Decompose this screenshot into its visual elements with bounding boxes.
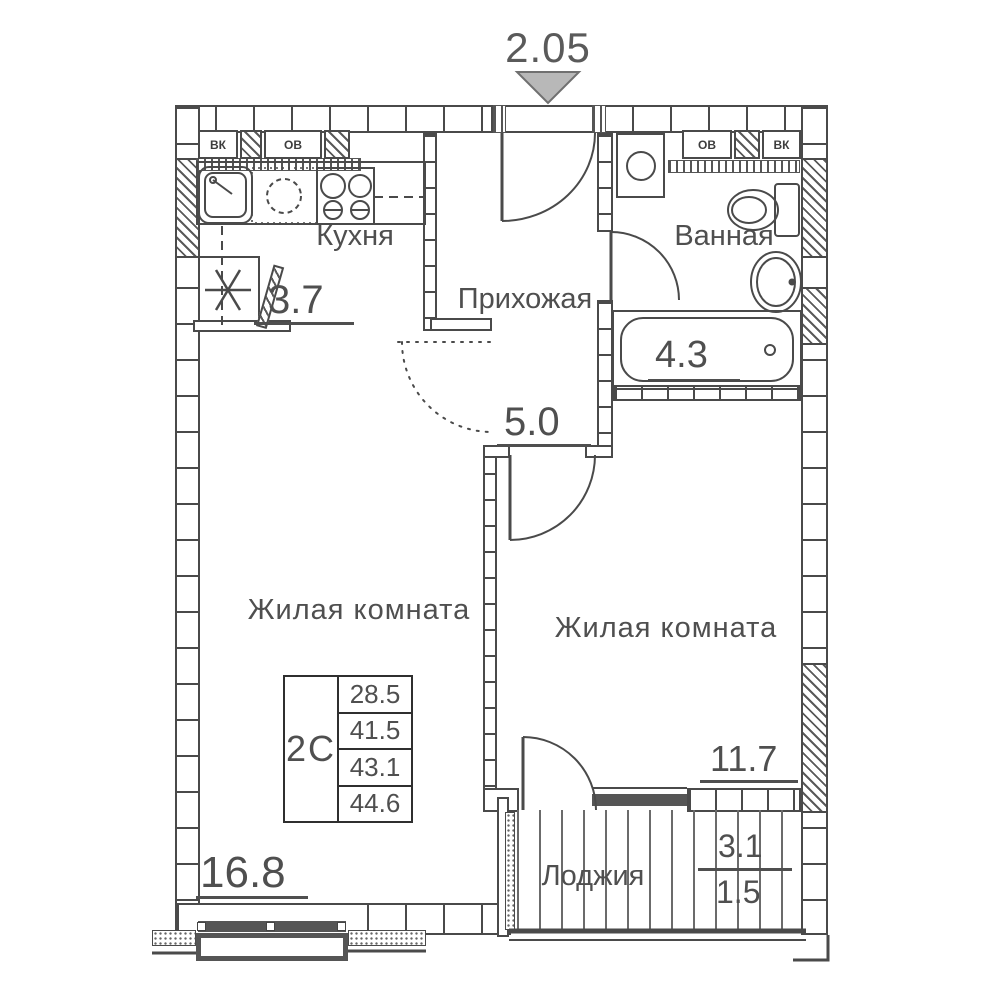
balcony-door-swing-icon: [523, 737, 596, 810]
living2-area-underline: [700, 780, 798, 783]
entrance-door-swing-icon: [502, 133, 595, 221]
washbasin-icon: [751, 252, 801, 312]
loggia-glazing-line: [509, 931, 806, 940]
wall-kitchen-hall-stub: [430, 318, 492, 331]
living2-area: 11.7: [710, 738, 777, 780]
living1-area-underline: [196, 896, 308, 899]
living1-label: Жилая комната: [230, 594, 488, 627]
wall-bath-bottom: [613, 385, 801, 401]
apartment-info-table: 2С 28.5 41.5 43.1 44.6: [283, 675, 413, 823]
area-value-row: 28.5: [339, 677, 411, 714]
living2-label: Жилая комната: [536, 612, 796, 645]
balcony-slab: [196, 933, 348, 961]
bathroom-label: Ванная: [660, 220, 788, 253]
insulation-loggia-left: [505, 812, 515, 930]
area-value-row: 43.1: [339, 750, 411, 787]
open-doorway-dotted-icon: [398, 342, 490, 432]
wall-end-step: [793, 935, 828, 960]
window-loggia-frame: [592, 794, 687, 806]
entrance-opening: [506, 105, 592, 133]
wall-top-left: [175, 105, 493, 133]
hallway-label: Прихожая: [446, 283, 604, 316]
shaft-right-ov: ОВ: [682, 130, 732, 159]
loggia-area-divider: [698, 868, 792, 871]
entrance-arrow-icon: [517, 72, 579, 103]
shaft-right-vk: ВК: [762, 130, 801, 159]
shaft-left-vk: ВК: [198, 130, 238, 159]
shaft-left-duct: [240, 130, 262, 159]
insulation-bottom-mid: [348, 930, 426, 946]
shaft-left-vk-label: ВК: [210, 138, 226, 152]
wall-hall-bath-upper: [597, 133, 613, 232]
shaft-right-ov-label: ОВ: [698, 138, 716, 152]
wall-right-hatch-3: [801, 663, 828, 813]
hallway-area-underline: [497, 444, 591, 447]
loggia-area-full: 3.1: [718, 828, 762, 865]
area-value-row: 44.6: [339, 787, 411, 822]
wall-right-hatch-2: [801, 287, 828, 345]
wall-loggia-right-seg: [687, 788, 801, 812]
kitchen-counter: [196, 161, 426, 225]
entrance-jamb-right: [592, 105, 606, 133]
entrance-jamb-left: [493, 105, 506, 133]
shaft-right-duct: [734, 130, 760, 159]
vent-shaft-box: [198, 256, 260, 322]
loggia-label: Лоджия: [528, 860, 658, 893]
window-loggia-lintel: [592, 787, 687, 789]
loggia-area-reduced: 1.5: [716, 874, 760, 911]
hallway-area: 5.0: [504, 400, 560, 445]
washing-machine-icon: [617, 134, 664, 197]
living2-door-swing-icon: [510, 455, 595, 540]
window-living1-post-r: [337, 922, 346, 931]
area-value-row: 41.5: [339, 714, 411, 751]
floor-plan: ВК ОВ ОВ ВК 2.05 Кухня 3.7 Прихожая 5.0 …: [0, 0, 1000, 1000]
apartment-type: 2С: [285, 677, 339, 821]
wall-top-right: [592, 105, 828, 133]
wall-right-hatch-1: [801, 158, 828, 258]
kitchen-area-underline: [254, 322, 354, 325]
wall-hall-bath-lower: [597, 300, 613, 455]
window-living1-post-l: [197, 922, 206, 931]
bathroom-area: 4.3: [655, 334, 708, 377]
window-living1-post-m: [266, 922, 275, 931]
insulation-bottom-left: [152, 930, 196, 946]
kitchen-label: Кухня: [297, 220, 413, 253]
kitchen-area: 3.7: [268, 278, 324, 323]
shaft-left-ov: ОВ: [264, 130, 322, 159]
living1-area: 16.8: [200, 848, 286, 898]
top-dimension: 2.05: [488, 24, 608, 72]
vent-band-right: [668, 160, 800, 173]
bathroom-area-underline: [648, 379, 740, 382]
shaft-right-vk-label: ВК: [774, 138, 790, 152]
shaft-left-duct-2: [324, 130, 350, 159]
shaft-left-ov-label: ОВ: [284, 138, 302, 152]
